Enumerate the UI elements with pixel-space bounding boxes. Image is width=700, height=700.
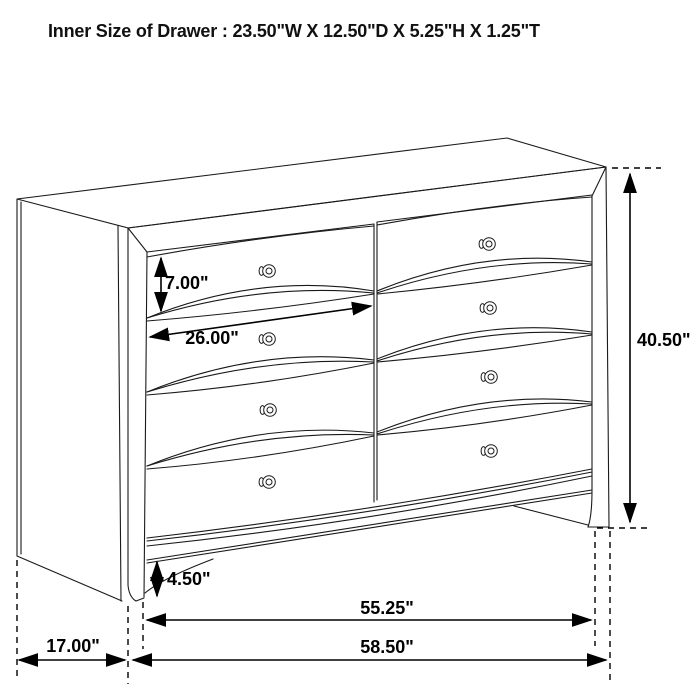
left-chamfer	[128, 228, 147, 252]
front-frame	[128, 167, 609, 597]
dim-arrow-drawer-width	[150, 306, 371, 337]
dim-label-drawer-height: 7.00"	[165, 273, 209, 293]
drawer-knob	[259, 476, 275, 489]
dresser-dimension-diagram: 7.00" 26.00" 40.50" 4.50" 55.25" 17.00" …	[0, 0, 700, 700]
right-chamfer	[592, 167, 606, 196]
dim-label-base-height: 4.50"	[167, 569, 211, 589]
right-apron	[514, 506, 588, 525]
dim-label-overall-width: 58.50"	[360, 637, 414, 657]
top-surface	[17, 138, 606, 228]
drawer-knob	[481, 371, 497, 384]
dim-label-overall-height: 40.50"	[637, 330, 691, 350]
drawer-dividers-left	[147, 285, 374, 469]
drawer-knob	[259, 265, 275, 278]
dresser-drawing	[17, 138, 609, 601]
dim-label-depth: 17.00"	[46, 636, 100, 656]
drawer-knob	[479, 238, 495, 251]
drawer-knob	[480, 302, 496, 315]
side-panel	[17, 199, 144, 601]
drawer-dividers-right	[377, 258, 592, 435]
diagram-page: Inner Size of Drawer : 23.50"W X 12.50"D…	[0, 0, 700, 700]
dim-label-drawer-width: 26.00"	[185, 328, 239, 348]
top-rails	[147, 195, 592, 257]
drawer-knob	[481, 445, 497, 458]
drawer-knob	[260, 404, 276, 417]
dim-label-base-width: 55.25"	[360, 598, 414, 618]
drawer-knob	[259, 333, 275, 346]
right-foot	[588, 490, 592, 527]
